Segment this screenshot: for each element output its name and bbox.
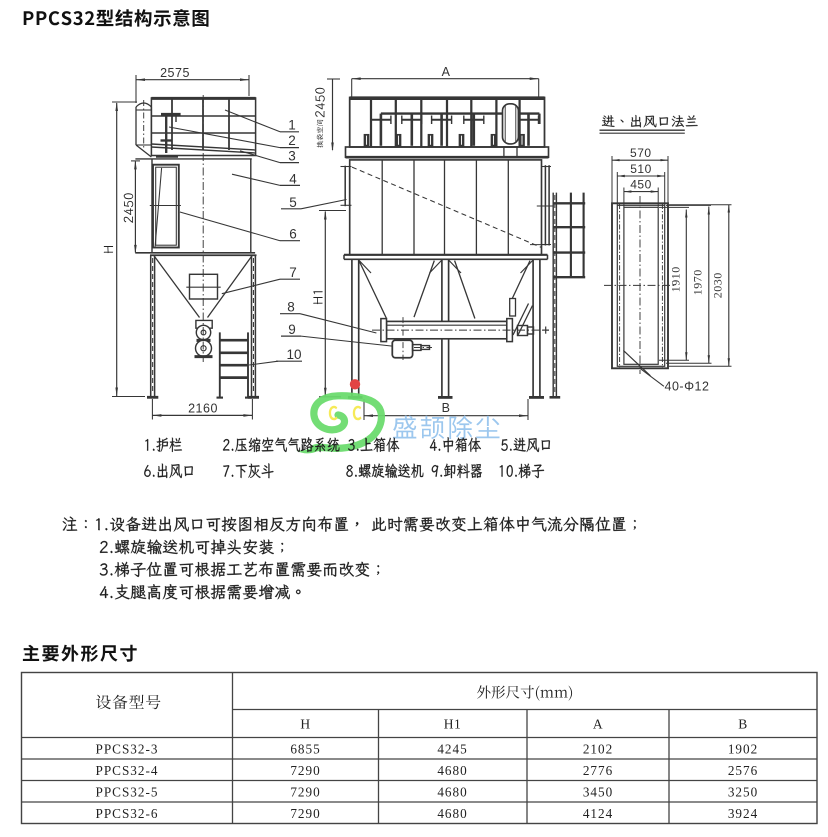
svg-text:7290: 7290 bbox=[290, 806, 320, 821]
svg-text:B: B bbox=[442, 401, 451, 415]
svg-text:1902: 1902 bbox=[728, 742, 758, 757]
svg-text:1910: 1910 bbox=[669, 266, 683, 292]
svg-text:A: A bbox=[593, 717, 603, 732]
svg-text:2102: 2102 bbox=[583, 742, 613, 757]
svg-text:1: 1 bbox=[288, 118, 296, 133]
svg-text:B: B bbox=[738, 717, 748, 732]
svg-text:A: A bbox=[442, 65, 451, 79]
svg-text:3924: 3924 bbox=[728, 806, 758, 821]
svg-text:5: 5 bbox=[289, 195, 297, 210]
svg-text:PPCS32-6: PPCS32-6 bbox=[96, 806, 159, 821]
svg-text:9: 9 bbox=[288, 322, 296, 337]
svg-text:8: 8 bbox=[287, 300, 295, 315]
svg-text:4: 4 bbox=[289, 171, 297, 186]
svg-text:2575: 2575 bbox=[160, 66, 190, 80]
svg-text:4680: 4680 bbox=[437, 806, 467, 821]
svg-text:4680: 4680 bbox=[437, 785, 467, 800]
svg-text:2576: 2576 bbox=[728, 763, 758, 778]
svg-text:6: 6 bbox=[289, 227, 297, 242]
svg-text:4124: 4124 bbox=[583, 806, 613, 821]
svg-text:10: 10 bbox=[286, 347, 301, 362]
svg-text:PPCS32-4: PPCS32-4 bbox=[96, 763, 159, 778]
svg-text:PPCS32-3: PPCS32-3 bbox=[96, 742, 159, 757]
svg-text:2: 2 bbox=[288, 133, 296, 148]
svg-text:2030: 2030 bbox=[711, 272, 725, 298]
svg-text:40-Φ12: 40-Φ12 bbox=[665, 380, 710, 394]
svg-text:H1: H1 bbox=[444, 717, 462, 732]
svg-text:3250: 3250 bbox=[728, 785, 758, 800]
svg-text:PPCS32-5: PPCS32-5 bbox=[96, 785, 159, 800]
svg-text:4245: 4245 bbox=[437, 742, 467, 757]
svg-text:7290: 7290 bbox=[290, 785, 320, 800]
svg-text:3: 3 bbox=[288, 148, 296, 163]
svg-text:450: 450 bbox=[630, 177, 652, 191]
svg-text:510: 510 bbox=[630, 162, 652, 176]
svg-text:2776: 2776 bbox=[583, 763, 613, 778]
svg-text:1970: 1970 bbox=[691, 269, 705, 295]
svg-text:H: H bbox=[300, 717, 310, 732]
svg-text:2160: 2160 bbox=[188, 402, 218, 416]
svg-text:570: 570 bbox=[630, 146, 652, 160]
svg-text:4680: 4680 bbox=[437, 763, 467, 778]
svg-text:6855: 6855 bbox=[290, 742, 320, 757]
svg-text:3450: 3450 bbox=[583, 785, 613, 800]
svg-text:7290: 7290 bbox=[290, 763, 320, 778]
svg-text:7: 7 bbox=[289, 265, 297, 280]
